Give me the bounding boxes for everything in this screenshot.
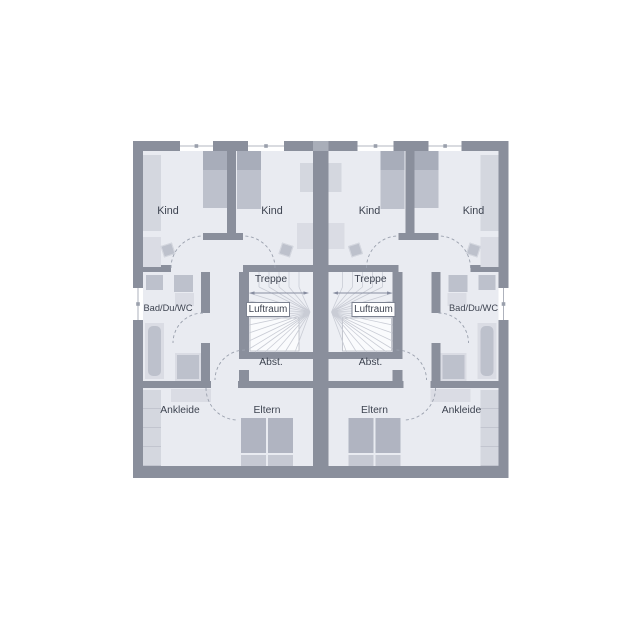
room-label-kind: Kind <box>145 205 191 217</box>
room-label-kind: Kind <box>249 205 295 217</box>
dwelling-unit-right: Kind Kind Treppe Luftraum Bad/Du/WC Abst… <box>321 141 509 478</box>
room-label-ankleide: Ankleide <box>153 405 207 417</box>
room-label-luftraum: Luftraum <box>351 302 395 317</box>
stair-walk-line <box>332 291 392 294</box>
window-frames <box>357 144 505 320</box>
room-label-eltern: Eltern <box>243 405 291 417</box>
room-label-kind: Kind <box>450 205 496 217</box>
room-label-bad: Bad/Du/WC <box>140 302 196 314</box>
room-label-treppe: Treppe <box>245 274 297 286</box>
floor-plan-canvas: Kind Kind Treppe Luftraum Bad/Du/WC Abst… <box>0 0 636 636</box>
room-label-bad: Bad/Du/WC <box>445 302 501 314</box>
dwelling-unit-left: Kind Kind Treppe Luftraum Bad/Du/WC Abst… <box>133 141 321 478</box>
room-label-ankleide: Ankleide <box>434 405 488 417</box>
room-label-abst: Abst. <box>346 357 394 369</box>
room-label-eltern: Eltern <box>350 405 398 417</box>
floor-plan: Kind Kind Treppe Luftraum Bad/Du/WC Abst… <box>133 141 508 478</box>
room-label-luftraum: Luftraum <box>246 302 290 317</box>
room-label-treppe: Treppe <box>344 274 396 286</box>
room-label-kind: Kind <box>346 205 392 217</box>
window-frames <box>136 144 284 320</box>
stair-walk-line <box>249 291 309 294</box>
room-label-abst: Abst. <box>247 357 295 369</box>
